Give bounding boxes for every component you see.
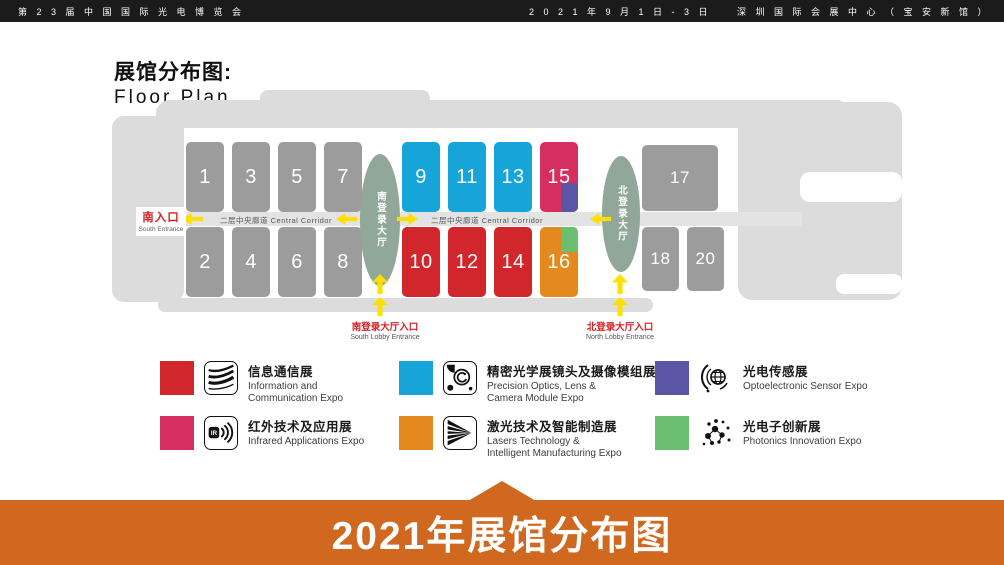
- footer-title: 2021年展馆分布图: [332, 505, 673, 561]
- hall-11-number: 11: [456, 166, 478, 189]
- floor-plan: 二层中央廊道 Central Corridor 二层中央廊道 Central C…: [110, 88, 900, 343]
- hall-1-number: 1: [199, 166, 211, 189]
- hall-9-number: 9: [415, 166, 427, 189]
- hall-3: 3: [232, 142, 270, 212]
- legend-item-precision-optics: 精密光学展镜头及摄像模组展 Precision Optics, Lens & C…: [399, 361, 656, 405]
- hall-1: 1: [186, 142, 224, 212]
- hall-15-number: 15: [547, 166, 570, 189]
- legend-zh-sensor: 光电传感展: [743, 361, 868, 380]
- hall-13-number: 13: [501, 166, 524, 189]
- south-entrance-en: South Entrance: [136, 226, 186, 233]
- fiber-lines-icon: [204, 361, 238, 395]
- expo-name: 第 2 3 届 中 国 国 际 光 电 博 览 会: [18, 5, 245, 18]
- legend-swatch-optics: [399, 361, 433, 395]
- hall-12-number: 12: [455, 251, 478, 274]
- legend-swatch-laser: [399, 416, 433, 450]
- expo-dates: 2 0 2 1 年 9 月 1 日 - 3 日: [529, 5, 711, 18]
- legend-zh-infrared: 红外技术及应用展: [248, 416, 364, 435]
- corridor-label-west: 二层中央廊道 Central Corridor: [220, 215, 332, 226]
- legend-en-laser: Lasers Technology & Intelligent Manufact…: [487, 436, 622, 460]
- svg-text:IR: IR: [210, 430, 217, 437]
- hall-11: 11: [448, 142, 486, 212]
- arrow-up-north-lobby-1-icon: [612, 274, 628, 294]
- hall-2-number: 2: [199, 251, 211, 274]
- hall-7-number: 7: [337, 166, 349, 189]
- hall-14-number: 14: [501, 251, 524, 274]
- corridor-label-east: 二层中央廊道 Central Corridor: [431, 215, 543, 226]
- south-lobby-entrance-en: South Lobby Entrance: [337, 334, 433, 341]
- hall-8: 8: [324, 227, 362, 297]
- slide: 第 2 3 届 中 国 国 际 光 电 博 览 会 2 0 2 1 年 9 月 …: [0, 0, 1004, 565]
- hall-9: 9: [402, 142, 440, 212]
- hall-10-number: 10: [409, 251, 432, 274]
- north-lobby-hall-label: 北登录大厅: [614, 185, 628, 243]
- sensor-globe-icon: [699, 361, 733, 395]
- hall-12: 12: [448, 227, 486, 297]
- hall-13: 13: [494, 142, 532, 212]
- south-lobby-hall-label: 南登录大厅: [373, 191, 387, 249]
- legend-en-infrared: Infrared Applications Expo: [248, 436, 364, 448]
- hall-20-number: 20: [696, 249, 716, 269]
- legend-swatch-photonics: [655, 416, 689, 450]
- hall-16-photonics-corner: [561, 227, 578, 252]
- right-wing-notch: [800, 172, 902, 202]
- photonics-network-icon: [699, 416, 733, 450]
- legend-zh-optics: 精密光学展镜头及摄像模组展: [487, 361, 656, 380]
- legend-en-photonics: Photonics Innovation Expo: [743, 436, 861, 448]
- footer-banner: 2021年展馆分布图: [0, 500, 1004, 565]
- legend-en-info: Information and Communication Expo: [248, 381, 343, 405]
- legend-zh-laser: 激光技术及智能制造展: [487, 416, 622, 435]
- building-outline-top-curve: [260, 90, 430, 106]
- south-lobby-entrance-label: 南登录大厅入口 South Lobby Entrance: [337, 319, 433, 341]
- north-lobby-hall: 北登录大厅: [602, 156, 640, 272]
- legend-item-photonics-innovation: 光电子创新展 Photonics Innovation Expo: [655, 416, 861, 450]
- north-lobby-entrance-label: 北登录大厅入口 North Lobby Entrance: [572, 319, 668, 341]
- hall-16-number: 16: [547, 251, 570, 274]
- building-outline-bottom: [158, 298, 653, 312]
- hall-10: 10: [402, 227, 440, 297]
- south-lobby-hall: 南登录大厅: [360, 154, 400, 286]
- legend-item-optoelectronic-sensor: 光电传感展 Optoelectronic Sensor Expo: [655, 361, 868, 395]
- legend-swatch-info: [160, 361, 194, 395]
- legend-en-sensor: Optoelectronic Sensor Expo: [743, 381, 868, 393]
- hall-4-number: 4: [245, 251, 257, 274]
- hall-16: 16: [540, 227, 578, 297]
- legend-item-infrared: IR 红外技术及应用展 Infrared Applications Expo: [160, 416, 364, 450]
- legend-en-optics: Precision Optics, Lens & Camera Module E…: [487, 381, 656, 405]
- infrared-waves-icon: IR: [204, 416, 238, 450]
- top-bar: 第 2 3 届 中 国 国 际 光 电 博 览 会 2 0 2 1 年 9 月 …: [0, 0, 1004, 22]
- north-lobby-entrance-zh: 北登录大厅入口: [572, 319, 668, 333]
- south-lobby-entrance-zh: 南登录大厅入口: [337, 319, 433, 333]
- hall-14: 14: [494, 227, 532, 297]
- legend-swatch-sensor: [655, 361, 689, 395]
- expo-venue: 深 圳 国 际 会 展 中 心 （ 宝 安 新 馆 ）: [737, 5, 990, 18]
- hall-7: 7: [324, 142, 362, 212]
- hall-17: 17: [642, 145, 718, 211]
- hall-4: 4: [232, 227, 270, 297]
- legend-swatch-infrared: [160, 416, 194, 450]
- right-wing-notch-2: [836, 274, 902, 294]
- hall-5: 5: [278, 142, 316, 212]
- footer-pointer-triangle: [468, 481, 536, 501]
- hall-6: 6: [278, 227, 316, 297]
- south-entrance-zh: 南入口: [136, 209, 186, 225]
- laser-beams-icon: [443, 416, 477, 450]
- hall-5-number: 5: [291, 166, 303, 189]
- hall-18-number: 18: [651, 249, 671, 269]
- hall-2: 2: [186, 227, 224, 297]
- plan-title-zh: 展馆分布图:: [114, 56, 232, 86]
- legend-zh-info: 信息通信展: [248, 361, 343, 380]
- south-entrance-label: 南入口 South Entrance: [136, 207, 186, 236]
- hall-20: 20: [687, 227, 724, 291]
- hall-6-number: 6: [291, 251, 303, 274]
- hall-8-number: 8: [337, 251, 349, 274]
- hall-3-number: 3: [245, 166, 257, 189]
- hall-15: 15: [540, 142, 578, 212]
- legend-item-laser: 激光技术及智能制造展 Lasers Technology & Intellige…: [399, 416, 622, 460]
- north-lobby-entrance-en: North Lobby Entrance: [572, 334, 668, 341]
- hall-17-number: 17: [670, 168, 690, 188]
- hall-18: 18: [642, 227, 679, 291]
- camera-lens-icon: [443, 361, 477, 395]
- legend-zh-photonics: 光电子创新展: [743, 416, 861, 435]
- legend-item-information-communication: 信息通信展 Information and Communication Expo: [160, 361, 343, 405]
